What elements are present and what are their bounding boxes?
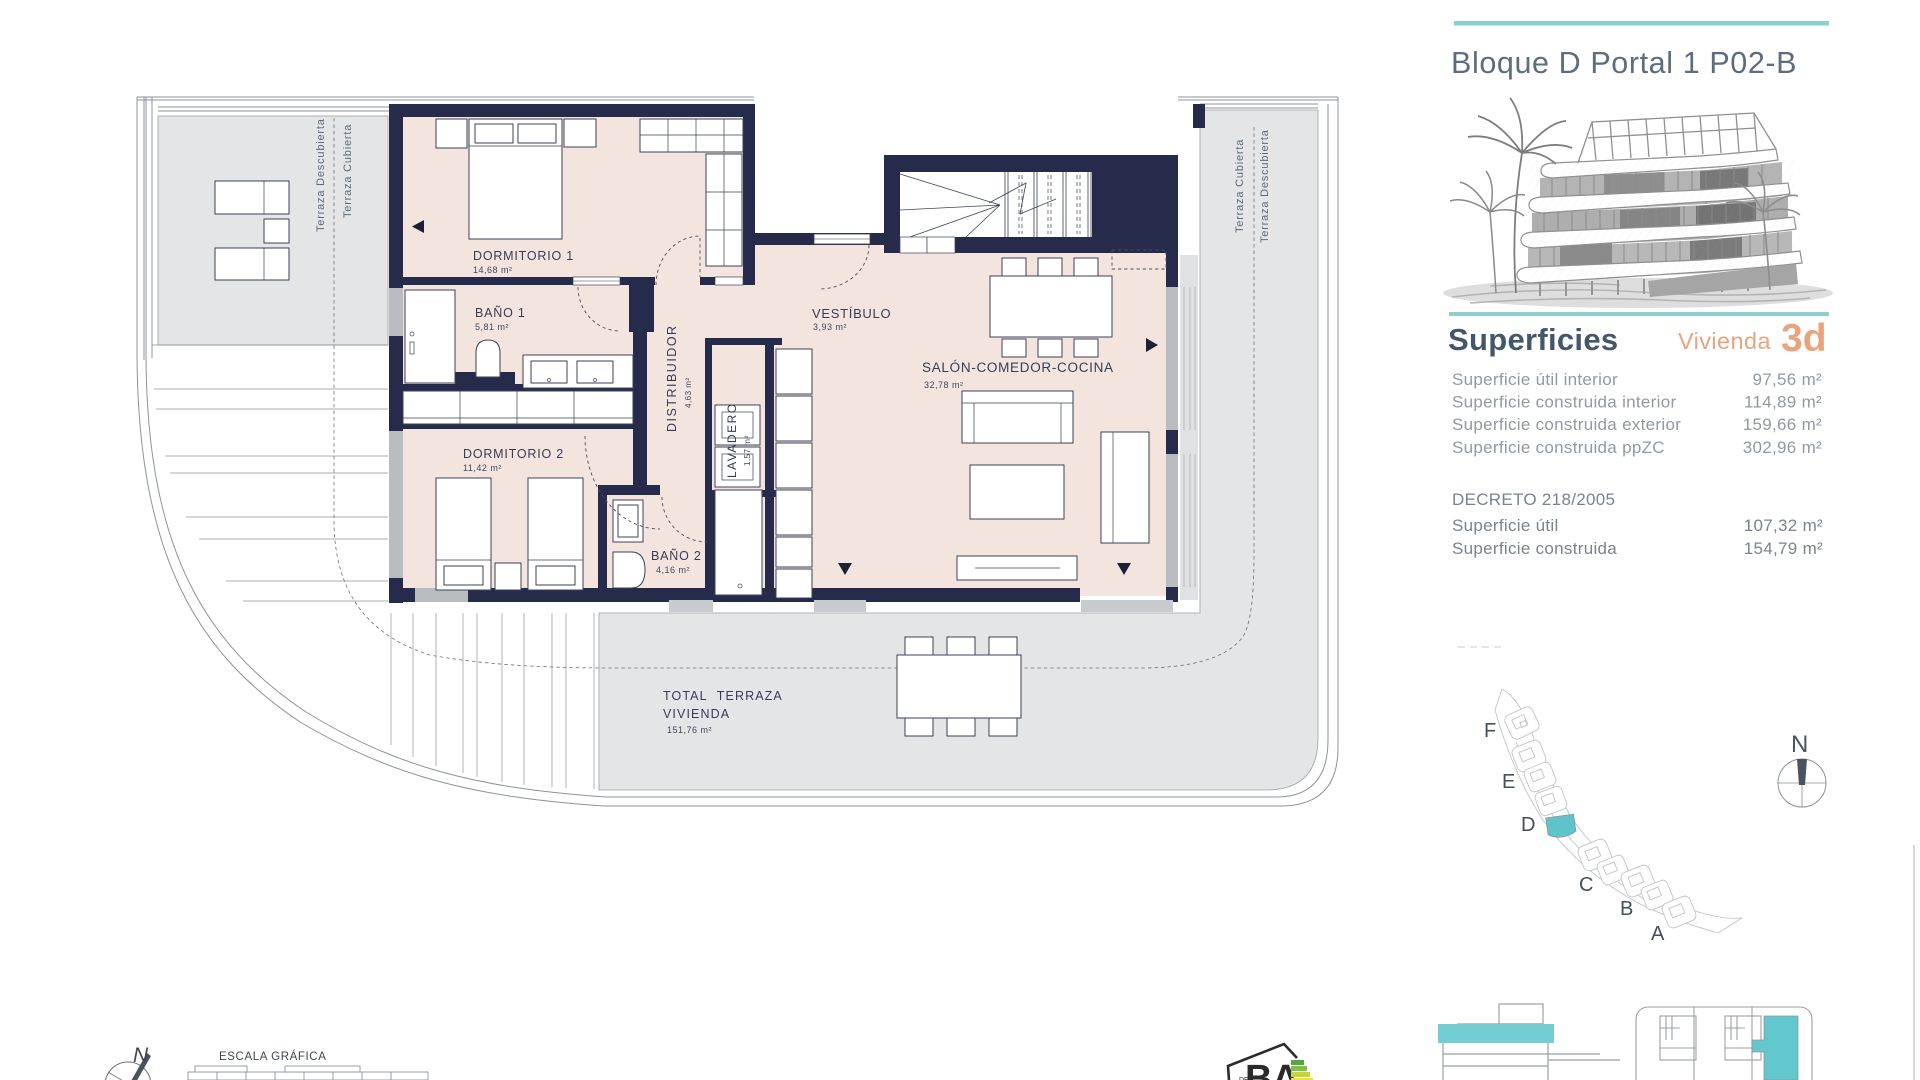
svg-text:Terraza Descubierta: Terraza Descubierta	[1259, 129, 1271, 243]
svg-text:C: C	[1579, 874, 1593, 896]
svg-text:Superficies: Superficies	[1448, 322, 1618, 357]
svg-text:114,89 m²: 114,89 m²	[1744, 393, 1822, 412]
svg-text:LAVADERO: LAVADERO	[725, 402, 739, 478]
svg-text:TOTAL TERRAZA: TOTAL TERRAZA	[663, 689, 783, 703]
svg-text:Superficie construida interior: Superficie construida interior	[1452, 393, 1676, 412]
svg-text:B: B	[1245, 1058, 1272, 1080]
svg-text:B: B	[1620, 898, 1633, 920]
svg-text:F: F	[1484, 720, 1496, 742]
svg-text:E: E	[1502, 771, 1515, 793]
svg-text:DORMITORIO 1: DORMITORIO 1	[473, 249, 574, 263]
svg-text:Superficie construida: Superficie construida	[1452, 539, 1617, 558]
svg-text:DISTRIBUIDOR: DISTRIBUIDOR	[665, 324, 679, 432]
svg-text:Superficie construida ppZC: Superficie construida ppZC	[1452, 438, 1665, 457]
svg-text:SALÓN-COMEDOR-COCINA: SALÓN-COMEDOR-COCINA	[922, 360, 1114, 375]
svg-text:ESCALA GRÁFICA: ESCALA GRÁFICA	[219, 1050, 326, 1063]
svg-text:151,76 m²: 151,76 m²	[667, 725, 712, 735]
svg-text:N: N	[1791, 731, 1808, 758]
svg-text:Bloque D Portal 1 P02-B: Bloque D Portal 1 P02-B	[1451, 46, 1797, 80]
svg-text:5,81 m²: 5,81 m²	[475, 322, 509, 332]
svg-text:3d: 3d	[1781, 317, 1827, 360]
svg-text:BAÑO 1: BAÑO 1	[475, 306, 526, 320]
svg-text:A: A	[1651, 923, 1665, 945]
svg-text:302,96 m²: 302,96 m²	[1743, 438, 1822, 457]
svg-text:Superficie construida exterior: Superficie construida exterior	[1452, 415, 1681, 434]
svg-text:Terraza Cubierta: Terraza Cubierta	[342, 124, 354, 218]
svg-text:159,66 m²: 159,66 m²	[1743, 415, 1822, 434]
svg-text:14,68 m²: 14,68 m²	[473, 265, 513, 275]
svg-text:Superficie útil interior: Superficie útil interior	[1452, 370, 1618, 389]
svg-text:3,93 m²: 3,93 m²	[813, 322, 847, 332]
svg-text:Terraza Cubierta: Terraza Cubierta	[1234, 139, 1246, 233]
svg-text:VESTÍBULO: VESTÍBULO	[812, 306, 891, 321]
svg-text:1,57 m²: 1,57 m²	[743, 435, 752, 466]
svg-text:4,16 m²: 4,16 m²	[656, 565, 690, 575]
svg-text:11,42 m²: 11,42 m²	[463, 463, 502, 473]
svg-text:VIVIENDA: VIVIENDA	[663, 707, 730, 721]
svg-text:107,32 m²: 107,32 m²	[1744, 516, 1823, 535]
svg-text:N: N	[133, 1044, 149, 1067]
svg-text:BAÑO 2: BAÑO 2	[651, 549, 702, 563]
svg-text:Superficie útil: Superficie útil	[1452, 516, 1559, 535]
svg-text:154,79 m²: 154,79 m²	[1744, 539, 1823, 558]
svg-text:DORMITORIO 2: DORMITORIO 2	[463, 447, 564, 461]
svg-text:32,78 m²: 32,78 m²	[924, 380, 964, 390]
svg-text:97,56 m²: 97,56 m²	[1753, 370, 1823, 389]
svg-text:4,63 m²: 4,63 m²	[684, 377, 693, 408]
svg-text:Terraza Descubierta: Terraza Descubierta	[315, 118, 327, 232]
svg-text:DECRETO 218/2005: DECRETO 218/2005	[1452, 490, 1615, 509]
svg-text:Vivienda: Vivienda	[1678, 328, 1771, 354]
svg-text:D: D	[1521, 814, 1535, 836]
